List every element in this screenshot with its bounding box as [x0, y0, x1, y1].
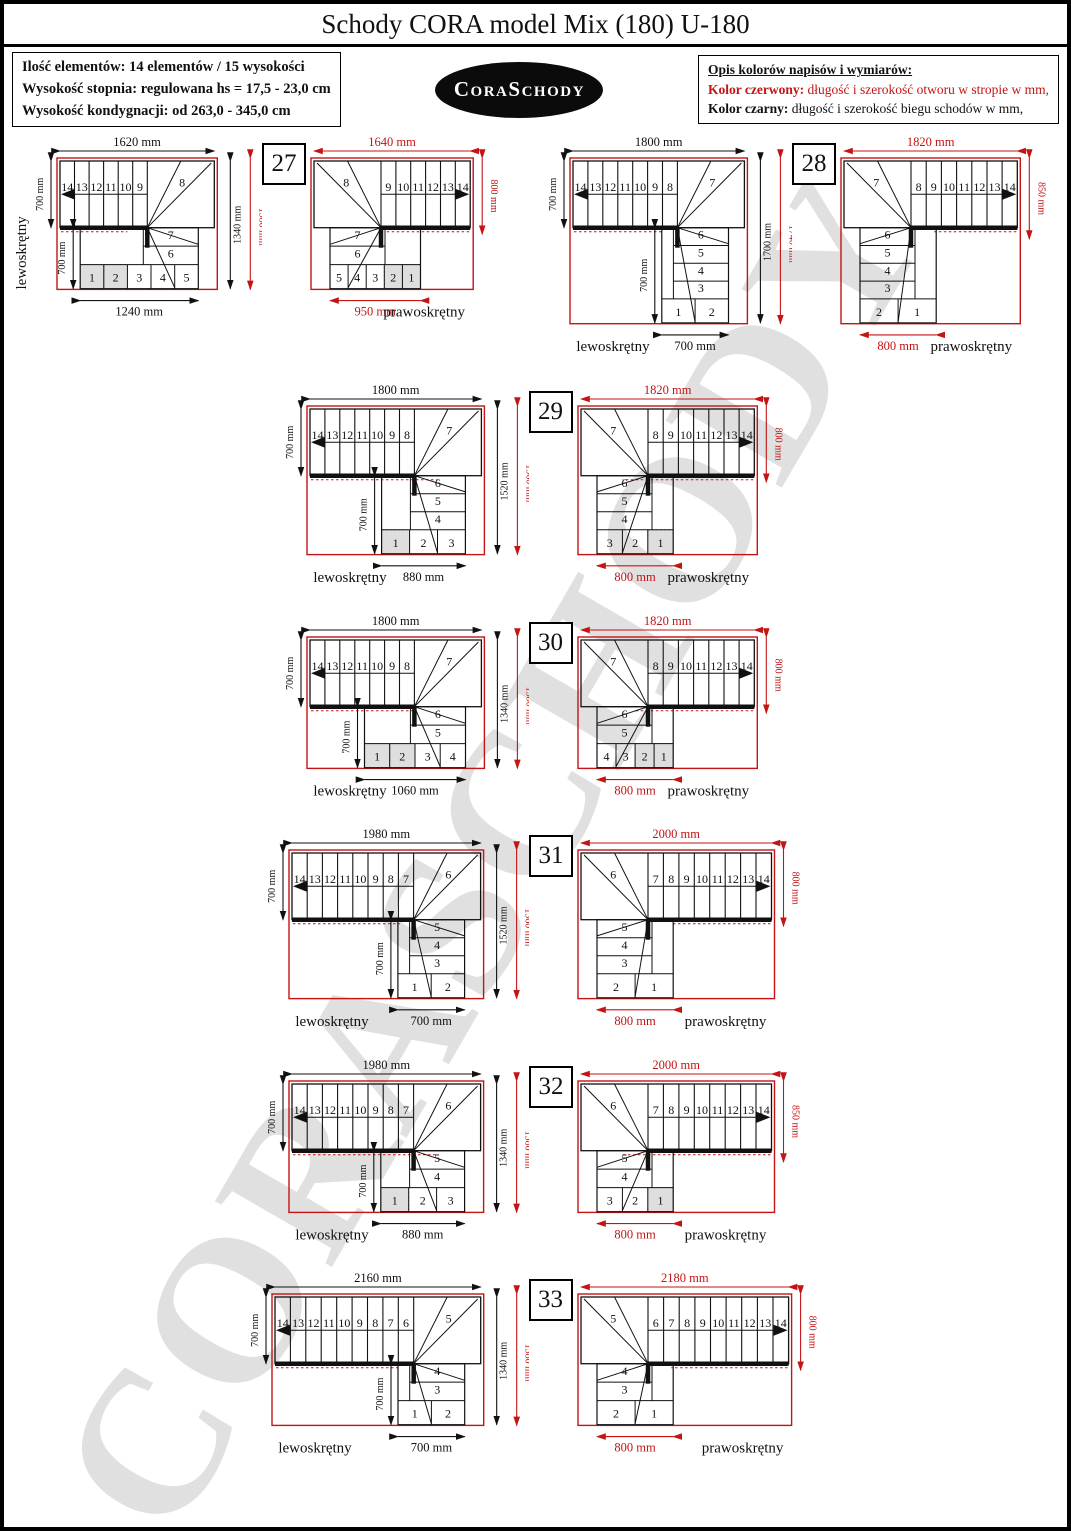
svg-text:3: 3 [621, 1383, 627, 1397]
svg-text:700 mm: 700 mm [250, 1314, 261, 1347]
svg-text:6: 6 [403, 1316, 409, 1330]
svg-text:9: 9 [684, 1103, 690, 1117]
svg-text:10: 10 [712, 1316, 724, 1330]
page-title: Schody CORA model Mix (180) U-180 [4, 4, 1067, 47]
svg-text:13: 13 [759, 1316, 771, 1330]
svg-text:700 mm: 700 mm [358, 1165, 369, 1198]
diagram-31-right: 14131211109876543122000 mm800 mm800 mmpr… [573, 827, 811, 1042]
svg-text:6: 6 [885, 228, 891, 242]
svg-text:2: 2 [399, 750, 405, 764]
diagram-27-left: 14131211109876123451620 mm700 mm700 mm13… [14, 135, 262, 332]
svg-text:1820 mm: 1820 mm [907, 135, 955, 149]
variant-number: 27 [272, 150, 297, 178]
svg-text:8: 8 [179, 176, 185, 190]
info-line-2: Wysokość stopnia: regulowana hs = 17,5 -… [22, 79, 331, 101]
svg-text:700 mm: 700 mm [35, 178, 46, 211]
svg-text:1800 mm: 1800 mm [371, 383, 419, 397]
svg-text:prawoskrętny: prawoskrętny [383, 305, 465, 321]
svg-text:800 mm: 800 mm [614, 570, 656, 584]
svg-text:11: 11 [695, 659, 707, 673]
svg-text:10: 10 [371, 659, 383, 673]
legend-black-line: Kolor czarny: długość i szerokość biegu … [708, 99, 1049, 119]
svg-text:9: 9 [699, 1316, 705, 1330]
diagram-29-right: 14131211109876541231820 mm800 mm800 mmpr… [573, 383, 794, 598]
diagram-28-right: 14131211109876543121820 mm850 mm800 mmpr… [836, 135, 1057, 367]
variant-number: 30 [538, 629, 563, 657]
svg-text:8: 8 [916, 180, 922, 194]
variant-29: 14131211109876541231800 mm700 mm700 mm15… [278, 383, 794, 598]
svg-text:5: 5 [434, 920, 440, 934]
svg-text:3: 3 [136, 271, 142, 285]
svg-text:800 mm: 800 mm [877, 339, 919, 353]
svg-text:1700 mm: 1700 mm [762, 223, 773, 261]
svg-text:13: 13 [589, 180, 601, 194]
svg-text:11: 11 [712, 1103, 724, 1117]
diagram-31-left: 14131211109876543121980 mm700 mm700 mm15… [260, 827, 529, 1042]
svg-text:13: 13 [442, 180, 454, 194]
variant-30: 14131211109876512341800 mm700 mm700 mm13… [278, 614, 794, 811]
svg-text:6: 6 [652, 1316, 658, 1330]
svg-text:6: 6 [168, 247, 174, 261]
diagram-32-left: 14131211109876541231980 mm700 mm700 mm13… [260, 1058, 529, 1255]
legend-red-line: Kolor czerwony: długość i szerokość otwo… [708, 80, 1049, 100]
svg-text:3: 3 [424, 750, 430, 764]
svg-text:2180 mm: 2180 mm [661, 1271, 709, 1285]
diagram-row: 14131211109876543122160 mm700 mm700 mm13… [14, 1271, 1057, 1468]
svg-text:700 mm: 700 mm [341, 721, 352, 754]
svg-text:lewoskrętny: lewoskrętny [278, 1441, 352, 1457]
svg-text:2: 2 [876, 305, 882, 319]
svg-text:13: 13 [742, 1103, 754, 1117]
svg-text:700 mm: 700 mm [410, 1441, 452, 1455]
info-line-3: Wysokość kondygnacji: od 263,0 - 345,0 c… [22, 101, 331, 123]
svg-text:prawoskrętny: prawoskrętny [685, 1228, 767, 1244]
svg-text:4: 4 [434, 1364, 440, 1378]
svg-text:5: 5 [610, 1312, 616, 1326]
info-box: Ilość elementów: 14 elementów / 15 wysok… [12, 52, 341, 127]
svg-text:4: 4 [621, 512, 627, 526]
svg-text:4: 4 [160, 271, 166, 285]
svg-text:12: 12 [743, 1316, 755, 1330]
svg-text:11: 11 [695, 428, 707, 442]
svg-text:7: 7 [653, 872, 659, 886]
svg-text:3: 3 [434, 956, 440, 970]
svg-text:800 mm: 800 mm [614, 1441, 656, 1455]
svg-text:3: 3 [606, 536, 612, 550]
svg-text:5: 5 [434, 726, 440, 740]
svg-text:700 mm: 700 mm [639, 259, 650, 292]
color-legend: Opis kolorów napisów i wymiarów: Kolor c… [698, 55, 1059, 124]
legend-red-label: Kolor czerwony: [708, 82, 804, 97]
svg-text:800 mm: 800 mm [806, 1316, 817, 1349]
svg-text:12: 12 [90, 180, 102, 194]
svg-text:prawoskrętny: prawoskrętny [667, 784, 749, 800]
svg-text:11: 11 [356, 659, 368, 673]
variant-31: 14131211109876543121980 mm700 mm700 mm15… [260, 827, 811, 1042]
svg-text:4: 4 [622, 1170, 628, 1184]
svg-text:12: 12 [324, 872, 336, 886]
svg-text:8: 8 [652, 428, 658, 442]
svg-text:1: 1 [89, 271, 95, 285]
svg-text:800 mm: 800 mm [614, 1014, 656, 1028]
svg-text:850 mm: 850 mm [790, 1105, 801, 1138]
svg-text:700 mm: 700 mm [375, 1378, 386, 1411]
svg-text:2: 2 [613, 1407, 619, 1421]
svg-text:prawoskrętny: prawoskrętny [930, 339, 1012, 355]
svg-text:9: 9 [667, 659, 673, 673]
svg-text:1380 mm: 1380 mm [523, 687, 529, 725]
svg-text:10: 10 [696, 1103, 708, 1117]
svg-text:8: 8 [343, 176, 349, 190]
svg-text:6: 6 [610, 1099, 616, 1113]
svg-text:1: 1 [660, 750, 666, 764]
svg-text:7: 7 [446, 424, 452, 438]
legend-black-label: Kolor czarny: [708, 101, 788, 116]
header-row: Ilość elementów: 14 elementów / 15 wysok… [4, 47, 1067, 129]
svg-text:1: 1 [651, 1407, 657, 1421]
variant-27: 14131211109876123451620 mm700 mm700 mm13… [14, 135, 510, 367]
svg-text:11: 11 [958, 180, 970, 194]
svg-text:4: 4 [885, 264, 891, 278]
svg-text:4: 4 [621, 1364, 627, 1378]
svg-text:13: 13 [725, 428, 737, 442]
svg-text:1: 1 [374, 750, 380, 764]
svg-text:2000 mm: 2000 mm [652, 1058, 700, 1072]
svg-text:880 mm: 880 mm [402, 1228, 444, 1242]
svg-text:1820 mm: 1820 mm [643, 614, 691, 628]
svg-text:13: 13 [742, 872, 754, 886]
svg-text:13: 13 [309, 1103, 321, 1117]
svg-text:5: 5 [885, 246, 891, 260]
svg-text:1340 mm: 1340 mm [499, 685, 510, 723]
svg-text:6: 6 [698, 228, 704, 242]
svg-text:800 mm: 800 mm [790, 872, 801, 905]
diagram-33-right: 14131211109876543122180 mm800 mm800 mmpr… [573, 1271, 829, 1468]
svg-text:8: 8 [404, 659, 410, 673]
svg-text:8: 8 [404, 428, 410, 442]
variant-32: 14131211109876541231980 mm700 mm700 mm13… [260, 1058, 811, 1255]
svg-text:800 mm: 800 mm [614, 784, 656, 798]
svg-text:lewoskrętny: lewoskrętny [295, 1014, 369, 1030]
svg-text:1380 mm: 1380 mm [522, 1344, 528, 1382]
svg-text:11: 11 [356, 428, 368, 442]
svg-text:13: 13 [309, 872, 321, 886]
svg-text:12: 12 [324, 1103, 336, 1117]
svg-text:1: 1 [675, 305, 681, 319]
svg-text:3: 3 [448, 1194, 454, 1208]
cora-schody-logo: CoraSchody [435, 62, 603, 118]
svg-text:prawoskrętny: prawoskrętny [701, 1441, 783, 1457]
variant-number-box: 27 [262, 143, 306, 185]
svg-text:9: 9 [652, 180, 658, 194]
variant-33: 14131211109876543122160 mm700 mm700 mm13… [243, 1271, 829, 1468]
svg-text:10: 10 [371, 428, 383, 442]
svg-text:7: 7 [873, 176, 879, 190]
svg-text:13: 13 [76, 180, 88, 194]
svg-text:5: 5 [434, 494, 440, 508]
svg-text:13: 13 [989, 180, 1001, 194]
svg-text:2: 2 [709, 305, 715, 319]
svg-text:1: 1 [651, 980, 657, 994]
diagram-28-left: 14131211109876543121800 mm700 mm700 mm17… [541, 135, 792, 367]
diagram-30-right: 14131211109876512341820 mm800 mm800 mmpr… [573, 614, 794, 811]
variant-number-box: 28 [792, 143, 836, 185]
diagram-32-right: 14131211109876541232000 mm850 mm800 mmpr… [573, 1058, 811, 1255]
svg-text:7: 7 [668, 1316, 674, 1330]
variant-number-box: 29 [529, 391, 573, 433]
svg-text:lewoskrętny: lewoskrętny [313, 570, 387, 586]
svg-text:9: 9 [385, 180, 391, 194]
svg-text:6: 6 [355, 247, 361, 261]
svg-text:6: 6 [621, 476, 627, 490]
svg-text:13: 13 [725, 659, 737, 673]
svg-text:700 mm: 700 mm [674, 339, 716, 353]
variant-number-box: 32 [529, 1066, 573, 1108]
diagram-row: 14131211109876512341800 mm700 mm700 mm13… [14, 614, 1057, 811]
diagram-33-left: 14131211109876543122160 mm700 mm700 mm13… [243, 1271, 529, 1468]
svg-text:3: 3 [622, 956, 628, 970]
svg-text:11: 11 [339, 872, 351, 886]
svg-text:1060 mm: 1060 mm [391, 784, 439, 798]
title-text: Schody CORA model Mix (180) U-180 [321, 9, 749, 39]
svg-text:700 mm: 700 mm [57, 242, 68, 275]
svg-text:700 mm: 700 mm [267, 870, 278, 903]
svg-text:9: 9 [356, 1316, 362, 1330]
svg-text:6: 6 [445, 868, 451, 882]
svg-text:1980 mm: 1980 mm [363, 827, 411, 841]
svg-text:2160 mm: 2160 mm [354, 1271, 402, 1285]
svg-text:700 mm: 700 mm [285, 426, 296, 459]
svg-text:7: 7 [168, 228, 174, 242]
svg-text:1800 mm: 1800 mm [371, 614, 419, 628]
svg-text:11: 11 [728, 1316, 740, 1330]
svg-text:10: 10 [354, 1103, 366, 1117]
svg-text:8: 8 [652, 659, 658, 673]
svg-text:12: 12 [710, 428, 722, 442]
svg-text:lewoskrętny: lewoskrętny [313, 784, 387, 800]
svg-text:2000 mm: 2000 mm [652, 827, 700, 841]
svg-text:1340 mm: 1340 mm [498, 1342, 509, 1380]
svg-text:700 mm: 700 mm [548, 178, 559, 211]
svg-text:3: 3 [372, 271, 378, 285]
svg-text:2: 2 [113, 271, 119, 285]
svg-text:5: 5 [336, 271, 342, 285]
svg-text:850 mm: 850 mm [1035, 182, 1046, 215]
svg-text:700 mm: 700 mm [358, 498, 369, 531]
diagram-row: 14131211109876541231800 mm700 mm700 mm15… [14, 383, 1057, 598]
svg-text:5: 5 [622, 1151, 628, 1165]
svg-text:10: 10 [634, 180, 646, 194]
svg-text:4: 4 [449, 750, 455, 764]
logo-text: CoraSchody [454, 77, 585, 102]
svg-text:2: 2 [632, 1194, 638, 1208]
svg-text:5: 5 [184, 271, 190, 285]
svg-text:3: 3 [434, 1383, 440, 1397]
svg-text:2: 2 [445, 980, 451, 994]
diagram-row: 14131211109876123451620 mm700 mm700 mm13… [14, 135, 1057, 367]
svg-text:4: 4 [434, 512, 440, 526]
svg-text:prawoskrętny: prawoskrętny [667, 570, 749, 586]
svg-text:12: 12 [973, 180, 985, 194]
variant-number-box: 33 [529, 1279, 573, 1321]
svg-text:9: 9 [373, 872, 379, 886]
svg-text:prawoskrętny: prawoskrętny [685, 1014, 767, 1030]
svg-text:6: 6 [621, 707, 627, 721]
svg-text:6: 6 [445, 1099, 451, 1113]
svg-text:9: 9 [931, 180, 937, 194]
svg-text:7: 7 [355, 228, 361, 242]
svg-text:1: 1 [411, 1407, 417, 1421]
diagram-row: 14131211109876543121980 mm700 mm700 mm15… [14, 827, 1057, 1042]
svg-text:7: 7 [403, 872, 409, 886]
svg-text:10: 10 [397, 180, 409, 194]
svg-text:10: 10 [338, 1316, 350, 1330]
svg-text:1520 mm: 1520 mm [499, 462, 510, 500]
svg-text:8: 8 [372, 1316, 378, 1330]
variant-number-box: 30 [529, 622, 573, 664]
diagram-27-right: 14131211109876123451640 mm800 mm950 mmpr… [306, 135, 510, 332]
svg-text:1560 mm: 1560 mm [523, 909, 529, 947]
svg-text:13: 13 [326, 659, 338, 673]
svg-text:10: 10 [943, 180, 955, 194]
variant-number: 33 [538, 1286, 563, 1314]
svg-text:880 mm: 880 mm [402, 570, 444, 584]
svg-text:1380 mm: 1380 mm [523, 1131, 529, 1169]
variant-number: 29 [538, 398, 563, 426]
svg-text:12: 12 [427, 180, 439, 194]
svg-text:lewoskrętny: lewoskrętny [295, 1228, 369, 1244]
svg-text:1380 mm: 1380 mm [256, 208, 262, 246]
svg-text:2: 2 [641, 750, 647, 764]
svg-text:9: 9 [137, 180, 143, 194]
svg-text:8: 8 [668, 872, 674, 886]
svg-text:1560 mm: 1560 mm [523, 465, 529, 503]
svg-text:9: 9 [373, 1103, 379, 1117]
variant-number-box: 31 [529, 835, 573, 877]
legend-black-text: długość i szerokość biegu schodów w mm, [788, 101, 1023, 116]
diagram-area: CORASCHODY 14131211109876123451620 mm700… [4, 129, 1067, 1468]
svg-text:4: 4 [434, 1170, 440, 1184]
legend-red-text: długość i szerokość otworu w stropie w m… [804, 82, 1049, 97]
variant-number: 31 [539, 842, 564, 870]
svg-text:1: 1 [914, 305, 920, 319]
variant-28: 14131211109876543121800 mm700 mm700 mm17… [541, 135, 1057, 367]
svg-text:6: 6 [434, 476, 440, 490]
variant-number: 32 [539, 1073, 564, 1101]
legend-title: Opis kolorów napisów i wymiarów: [708, 60, 1049, 80]
svg-text:2: 2 [420, 1194, 426, 1208]
svg-text:12: 12 [727, 872, 739, 886]
svg-text:2: 2 [632, 536, 638, 550]
svg-text:6: 6 [610, 868, 616, 882]
svg-text:9: 9 [684, 872, 690, 886]
svg-text:4: 4 [434, 938, 440, 952]
svg-text:800 mm: 800 mm [614, 1228, 656, 1242]
svg-text:5: 5 [622, 920, 628, 934]
svg-text:5: 5 [698, 246, 704, 260]
svg-text:700 mm: 700 mm [411, 1014, 453, 1028]
svg-text:10: 10 [354, 872, 366, 886]
svg-text:12: 12 [341, 659, 353, 673]
svg-text:1520 mm: 1520 mm [499, 906, 510, 944]
svg-text:4: 4 [354, 271, 360, 285]
svg-text:1: 1 [412, 980, 418, 994]
svg-text:5: 5 [445, 1312, 451, 1326]
svg-text:13: 13 [292, 1316, 304, 1330]
svg-text:2: 2 [390, 271, 396, 285]
svg-text:1800 mm: 1800 mm [635, 135, 683, 149]
svg-text:2: 2 [613, 980, 619, 994]
svg-text:7: 7 [446, 655, 452, 669]
svg-text:4: 4 [603, 750, 609, 764]
svg-text:1340 mm: 1340 mm [499, 1129, 510, 1167]
svg-text:11: 11 [712, 872, 724, 886]
variant-number: 28 [802, 150, 827, 178]
svg-text:12: 12 [604, 180, 616, 194]
svg-text:1: 1 [657, 536, 663, 550]
svg-text:7: 7 [610, 655, 616, 669]
diagram-grid: 14131211109876123451620 mm700 mm700 mm13… [14, 135, 1057, 1468]
svg-text:7: 7 [653, 1103, 659, 1117]
svg-text:1: 1 [392, 1194, 398, 1208]
svg-text:11: 11 [105, 180, 117, 194]
svg-text:9: 9 [389, 659, 395, 673]
svg-text:11: 11 [339, 1103, 351, 1117]
svg-text:1620 mm: 1620 mm [113, 135, 161, 149]
svg-text:5: 5 [434, 1151, 440, 1165]
svg-text:10: 10 [680, 428, 692, 442]
svg-text:7: 7 [403, 1103, 409, 1117]
svg-text:2: 2 [445, 1407, 451, 1421]
svg-text:12: 12 [710, 659, 722, 673]
svg-text:13: 13 [326, 428, 338, 442]
info-line-1: Ilość elementów: 14 elementów / 15 wysok… [22, 57, 331, 79]
svg-text:3: 3 [622, 750, 628, 764]
svg-text:12: 12 [307, 1316, 319, 1330]
svg-text:12: 12 [341, 428, 353, 442]
svg-text:800 mm: 800 mm [488, 180, 499, 213]
diagram-29-left: 14131211109876541231800 mm700 mm700 mm15… [278, 383, 529, 598]
svg-text:3: 3 [885, 281, 891, 295]
svg-text:1740 mm: 1740 mm [786, 225, 792, 263]
svg-text:3: 3 [607, 1194, 613, 1208]
svg-text:10: 10 [696, 872, 708, 886]
svg-text:1: 1 [658, 1194, 664, 1208]
svg-text:800 mm: 800 mm [772, 428, 783, 461]
diagram-row: 14131211109876541231980 mm700 mm700 mm13… [14, 1058, 1057, 1255]
svg-text:11: 11 [619, 180, 631, 194]
document-page: Schody CORA model Mix (180) U-180 Ilość … [0, 0, 1071, 1531]
svg-text:1: 1 [408, 271, 414, 285]
svg-text:5: 5 [621, 726, 627, 740]
svg-text:6: 6 [434, 707, 440, 721]
svg-text:9: 9 [667, 428, 673, 442]
svg-text:11: 11 [323, 1316, 335, 1330]
svg-text:lewoskrętny: lewoskrętny [14, 216, 30, 290]
svg-text:10: 10 [680, 659, 692, 673]
svg-text:4: 4 [698, 264, 704, 278]
svg-text:9: 9 [389, 428, 395, 442]
svg-text:700 mm: 700 mm [375, 942, 386, 975]
svg-text:4: 4 [622, 938, 628, 952]
svg-text:7: 7 [610, 424, 616, 438]
svg-text:700 mm: 700 mm [285, 657, 296, 690]
svg-text:5: 5 [621, 494, 627, 508]
svg-text:7: 7 [709, 176, 715, 190]
svg-text:10: 10 [120, 180, 132, 194]
svg-text:1820 mm: 1820 mm [643, 383, 691, 397]
svg-text:1340 mm: 1340 mm [232, 206, 243, 244]
